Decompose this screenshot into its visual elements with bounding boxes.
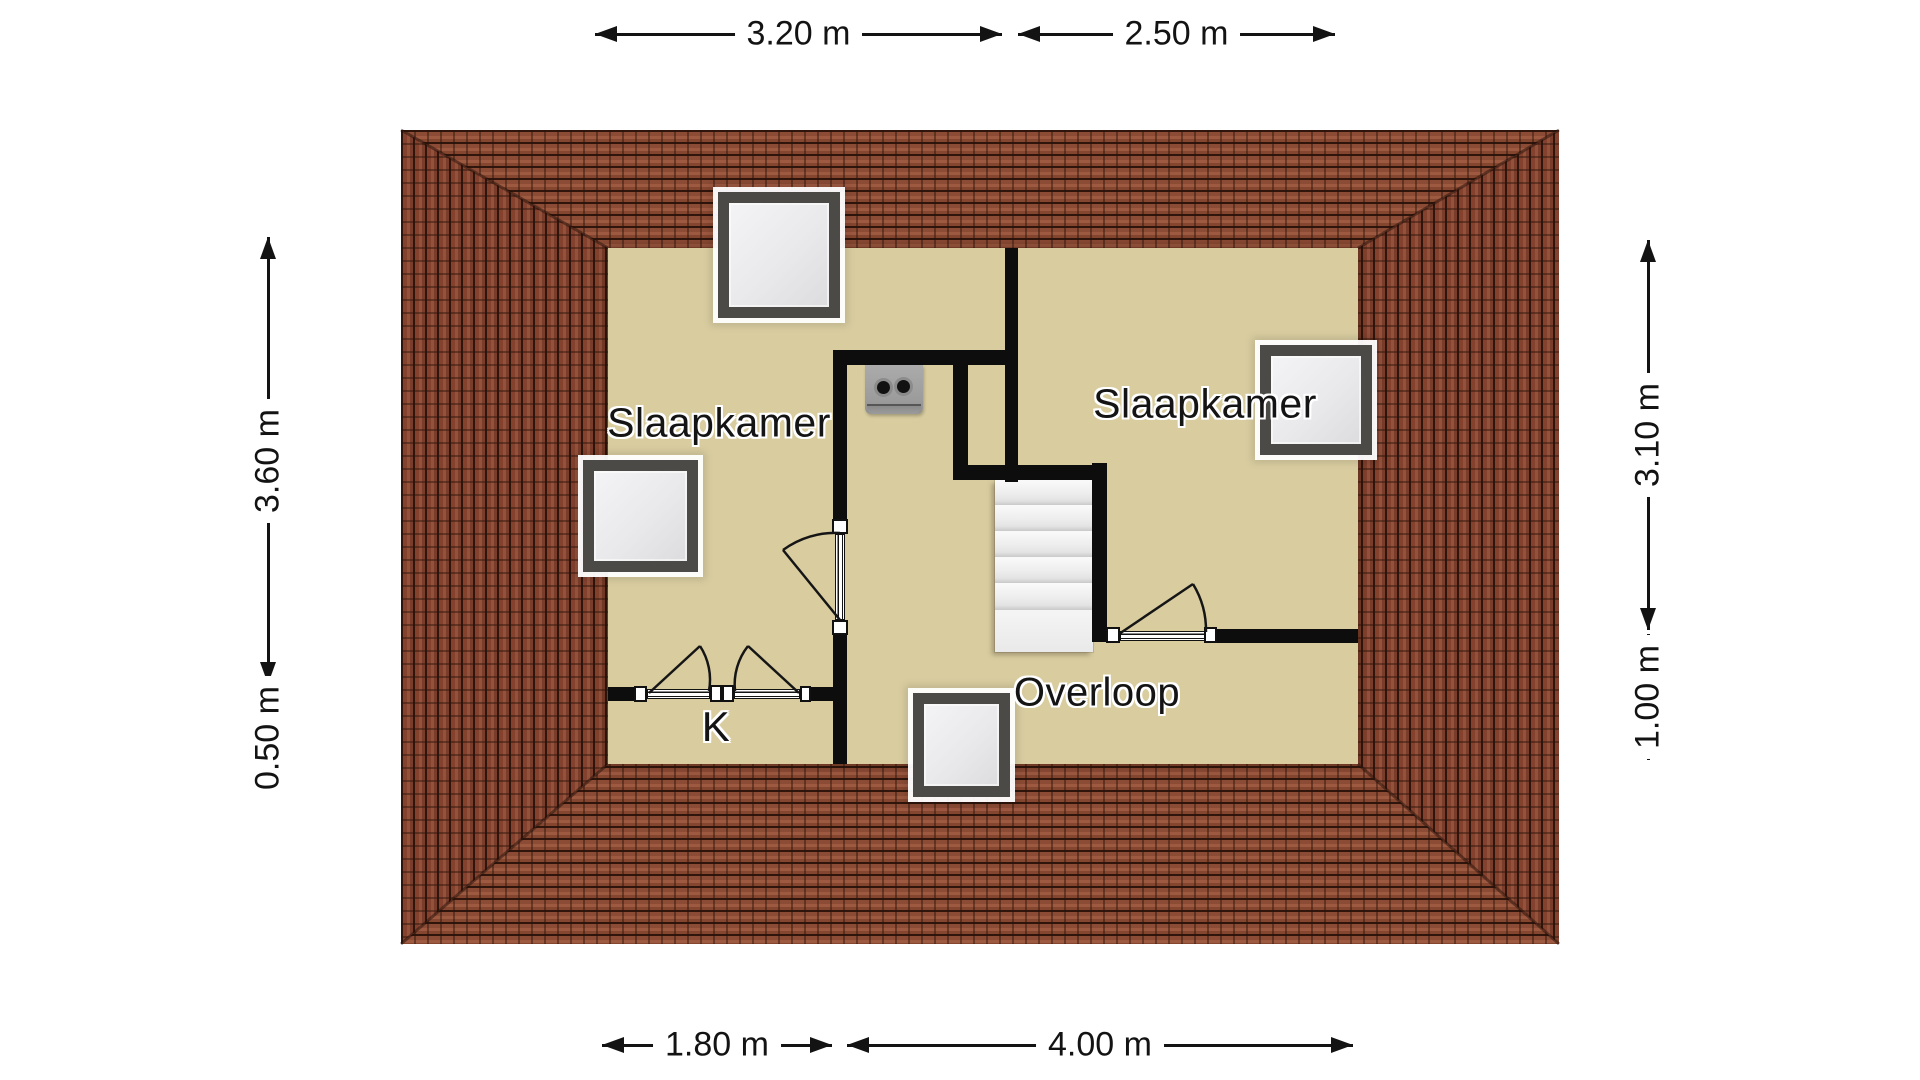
wall-segment bbox=[608, 687, 635, 701]
skylight-window-left bbox=[583, 460, 698, 572]
dimension-top-left: 3.20 m bbox=[595, 12, 1002, 56]
stair-tread bbox=[995, 505, 1093, 531]
door-leaf bbox=[835, 534, 845, 620]
bedroom-left-label: Slaapkamer bbox=[607, 400, 831, 447]
wall-segment bbox=[1005, 248, 1018, 482]
stair-tread bbox=[995, 557, 1093, 583]
ventilation-unit-lip bbox=[867, 404, 921, 414]
dimension-left-upper: 3.60 m bbox=[246, 237, 290, 684]
dimension-label: 3.10 m bbox=[1628, 373, 1669, 497]
dimension-bottom-left: 1.80 m bbox=[602, 1023, 832, 1067]
dimension-label: 0.50 m bbox=[248, 676, 289, 800]
wall-segment bbox=[833, 352, 847, 520]
staircase bbox=[995, 480, 1093, 652]
door-jamb bbox=[710, 685, 722, 702]
door-leaf bbox=[734, 689, 800, 699]
stair-tread bbox=[995, 480, 1093, 505]
dimension-right-lower: 1.00 m bbox=[1626, 634, 1670, 760]
dimension-label: 4.00 m bbox=[1036, 1025, 1164, 1066]
door-jamb bbox=[722, 685, 734, 702]
wall-segment bbox=[833, 635, 847, 764]
door-leaf bbox=[1120, 631, 1205, 641]
dimension-bottom-right: 4.00 m bbox=[847, 1023, 1353, 1067]
dimension-top-right: 2.50 m bbox=[1018, 12, 1335, 56]
ventilation-unit bbox=[865, 365, 923, 414]
stair-tread bbox=[995, 531, 1093, 557]
ventilation-knob-icon bbox=[877, 381, 890, 394]
door-jamb bbox=[800, 686, 811, 702]
door-jamb bbox=[832, 620, 848, 635]
closet-label: K bbox=[702, 703, 731, 751]
floorplan-canvas: Slaapkamer Slaapkamer Overloop K 3.20 m … bbox=[0, 0, 1920, 1080]
wall-segment bbox=[811, 687, 833, 701]
dimension-label: 1.80 m bbox=[653, 1025, 781, 1066]
wall-segment bbox=[953, 465, 1107, 480]
dimension-label: 1.00 m bbox=[1628, 635, 1669, 759]
stair-tread bbox=[995, 583, 1093, 610]
bedroom-right-label: Slaapkamer bbox=[1093, 381, 1317, 428]
dimension-left-lower: 0.50 m bbox=[246, 687, 290, 753]
wall-segment bbox=[833, 350, 1018, 365]
wall-segment bbox=[1092, 463, 1107, 642]
dimension-label: 3.20 m bbox=[735, 14, 863, 55]
door-jamb bbox=[832, 519, 848, 534]
door-jamb bbox=[634, 686, 647, 702]
dimension-right-upper: 3.10 m bbox=[1626, 240, 1670, 630]
skylight-window-top bbox=[718, 192, 840, 318]
dimension-label: 3.60 m bbox=[248, 399, 289, 523]
door-jamb bbox=[1106, 627, 1120, 643]
door-leaf bbox=[647, 689, 710, 699]
stair-tread bbox=[995, 610, 1093, 652]
landing-label: Overloop bbox=[1014, 671, 1180, 716]
door-jamb bbox=[1204, 627, 1217, 643]
skylight-window-bottom bbox=[913, 693, 1010, 797]
dimension-label: 2.50 m bbox=[1113, 14, 1241, 55]
wall-segment bbox=[953, 350, 968, 480]
wall-segment bbox=[1217, 629, 1358, 643]
ventilation-knob-icon bbox=[897, 380, 910, 393]
